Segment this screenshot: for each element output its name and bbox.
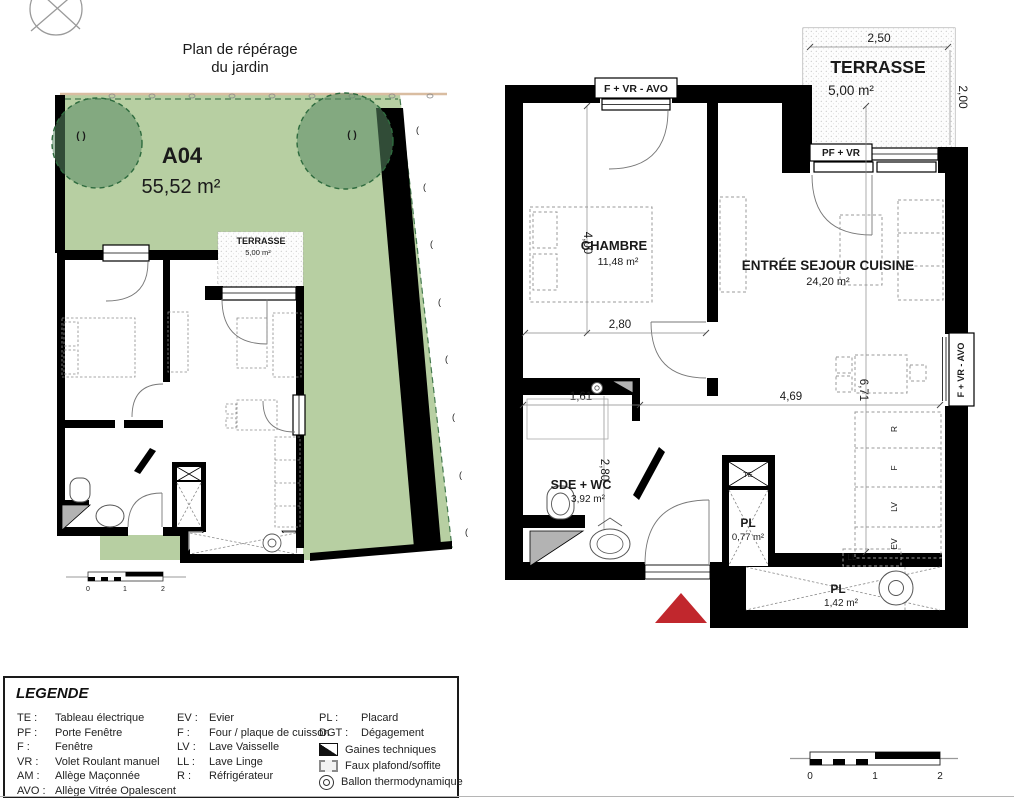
- garden-plan: Plan de répérage du jardin: [30, 0, 468, 593]
- svg-text:1: 1: [872, 771, 878, 782]
- tag-evier: EV: [889, 538, 899, 550]
- window-right: F + VR - AVO: [940, 333, 974, 406]
- svg-text:(: (: [438, 297, 441, 307]
- terrace-area: 5,00 m²: [828, 83, 874, 98]
- placard-small-area: 0,77 m²: [732, 532, 764, 543]
- garden-terrace-area: 5,00 m²: [245, 248, 271, 257]
- terrace-dim-depth: 2,00: [956, 85, 970, 109]
- tree-right-mark: ( ): [347, 130, 356, 141]
- legend-abbr: PL :: [319, 711, 361, 726]
- legend-column-3: PL :Placard DGT :Dégagement Gaines techn…: [319, 711, 463, 789]
- legend-label: Tableau électrique: [55, 711, 144, 726]
- dim-sejour-height: 6,71: [857, 379, 869, 401]
- terrace-dim-width: 2,50: [867, 31, 891, 45]
- placard-small: TE PL 0,77 m²: [722, 455, 775, 573]
- sejour-area: 24,20 m²: [806, 276, 850, 288]
- sejour-label: ENTRÉE SEJOUR CUISINE: [742, 258, 915, 273]
- placard-bottom-area: 1,42 m²: [824, 598, 859, 609]
- legend-abbr: VR :: [17, 755, 55, 770]
- lot-area: 55,52 m²: [142, 176, 221, 198]
- legend-symbol-label: Ballon thermodynamique: [341, 775, 463, 790]
- tree-left-mark: ( ): [76, 131, 85, 142]
- dim-sde-width: 1,61: [570, 391, 592, 403]
- legend-box: LEGENDE TE :Tableau électrique PF :Porte…: [3, 676, 459, 798]
- legend-symbol-label: Faux plafond/soffite: [345, 759, 441, 774]
- tree-right: [297, 93, 393, 189]
- tag-lave-vaisselle: LV: [889, 502, 899, 512]
- apartment-plan: 2,50 2,00 TERRASSE 5,00 m²: [505, 28, 974, 782]
- door-arcs: [651, 322, 706, 378]
- window-top-label: F + VR - AVO: [604, 83, 668, 95]
- faux-plafond-icon: [319, 760, 338, 772]
- legend-abbr: PF :: [17, 726, 55, 741]
- svg-text:0: 0: [86, 586, 90, 593]
- legend-abbr: R :: [177, 769, 209, 784]
- svg-text:(: (: [452, 412, 455, 422]
- legend-label: Lave Linge: [209, 755, 263, 770]
- terrace: 2,50 2,00 TERRASSE 5,00 m²: [803, 28, 970, 148]
- svg-text:2: 2: [937, 771, 943, 782]
- chambre-area: 11,48 m²: [598, 256, 639, 268]
- legend-label: Dégagement: [361, 726, 424, 741]
- sde-area: 3,92 m²: [571, 494, 606, 505]
- legend-label: Placard: [361, 711, 398, 726]
- placard-bottom: PL 1,42 m²: [746, 567, 940, 610]
- legend-abbr: EV :: [177, 711, 209, 726]
- svg-text:(: (: [465, 527, 468, 537]
- entrance: [645, 500, 710, 623]
- svg-text:(: (: [445, 354, 448, 364]
- gaines-triangle-sde: [530, 531, 583, 566]
- legend-abbr: LL :: [177, 755, 209, 770]
- svg-text:(: (: [430, 239, 433, 249]
- floorplan-sheet: Plan de répérage du jardin: [0, 0, 1014, 800]
- legend-abbr: F :: [17, 740, 55, 755]
- garden-plan-title-line1: Plan de répérage: [182, 41, 297, 58]
- window-top: F + VR - AVO: [595, 78, 677, 169]
- placard-small-label: PL: [740, 516, 755, 530]
- garden-plan-title-line2: du jardin: [211, 59, 269, 76]
- legend-label: Evier: [209, 711, 234, 726]
- lot-id: A04: [162, 143, 203, 168]
- legend-column-2: EV :Evier F :Four / plaque de cuisson LV…: [177, 711, 329, 784]
- terrace-label: TERRASSE: [830, 57, 925, 77]
- legend-abbr: DGT :: [319, 726, 361, 741]
- svg-text:1: 1: [123, 586, 127, 593]
- tag-tableau-electrique: TE: [743, 470, 753, 479]
- garden-plan-scale-bar: 0 1 2: [66, 572, 186, 593]
- legend-abbr: F :: [177, 726, 209, 741]
- garden-terrace-label: TERRASSE: [236, 236, 285, 246]
- window-terrace-label: PF + VR: [822, 148, 861, 159]
- entrance-arrow: [655, 593, 707, 623]
- legend-label: Fenêtre: [55, 740, 93, 755]
- page-bottom-rule: [0, 796, 1014, 797]
- legend-label: Lave Vaisselle: [209, 740, 279, 755]
- chambre-label: CHAMBRE: [581, 238, 648, 253]
- window-terrace-door: PF + VR: [810, 144, 938, 235]
- sde-label: SDE + WC: [551, 478, 612, 492]
- placard-bottom-label: PL: [830, 582, 845, 596]
- tree-left: [52, 98, 142, 188]
- legend-symbol-label: Gaines techniques: [345, 743, 436, 758]
- legend-label: Volet Roulant manuel: [55, 755, 160, 770]
- legend-label: Porte Fenêtre: [55, 726, 122, 741]
- svg-text:0: 0: [807, 771, 813, 782]
- window-right-label: F + VR - AVO: [956, 343, 966, 398]
- gaines-techniques-icon: [319, 743, 338, 756]
- legend-abbr: AM :: [17, 769, 55, 784]
- legend-label: Réfrigérateur: [209, 769, 273, 784]
- legend-abbr: LV :: [177, 740, 209, 755]
- apartment-scale-bar: 0 1 2: [790, 752, 958, 782]
- svg-text:(: (: [423, 182, 426, 192]
- svg-text:2: 2: [161, 586, 165, 593]
- svg-text:(: (: [416, 125, 419, 135]
- tag-refrigerateur: R: [889, 426, 899, 432]
- svg-text:(: (: [459, 470, 462, 480]
- garden-plan-apartment: TERRASSE 5,00 m²: [57, 232, 305, 563]
- legend-column-1: TE :Tableau électrique PF :Porte Fenêtre…: [17, 711, 176, 799]
- legend-title: LEGENDE: [16, 685, 89, 702]
- tag-four: F: [889, 465, 899, 470]
- dim-chambre-width: 2,80: [609, 319, 631, 331]
- legend-label: Allège Maçonnée: [55, 769, 140, 784]
- tag-lave-linge: LL: [848, 553, 857, 562]
- dim-sejour-width: 4,69: [780, 391, 802, 403]
- legend-abbr: TE :: [17, 711, 55, 726]
- compass-icon: [30, 0, 82, 35]
- legend-label: Four / plaque de cuisson: [209, 726, 329, 741]
- ballon-thermodynamique-icon: [319, 775, 334, 790]
